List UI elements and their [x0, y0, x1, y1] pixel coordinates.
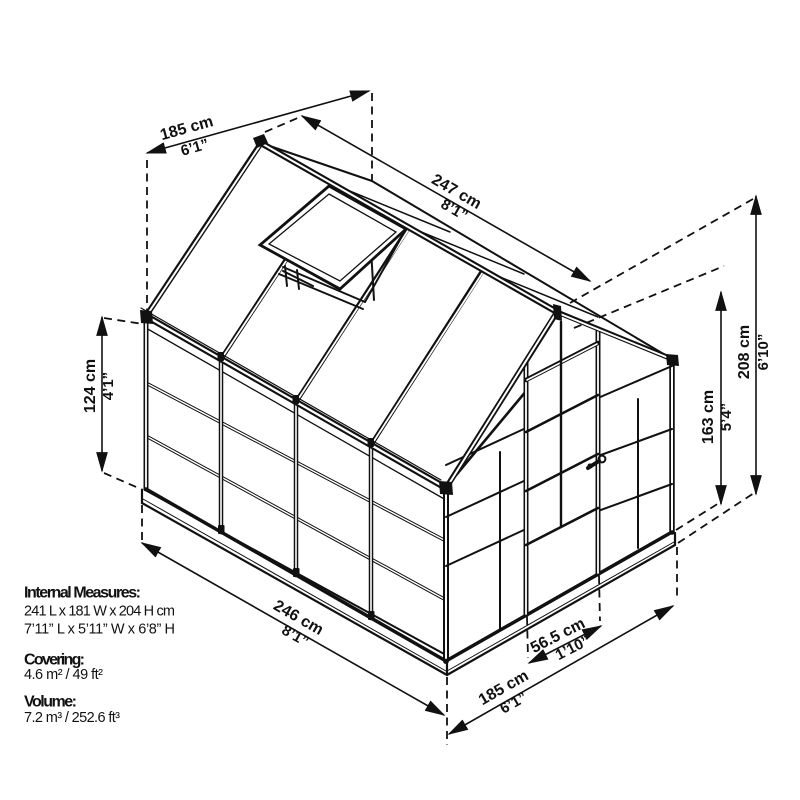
- svg-text:4’1”: 4’1”: [100, 372, 117, 400]
- svg-text:241 L x 181 W x 204 H cm: 241 L x 181 W x 204 H cm: [24, 604, 175, 620]
- svg-text:6’10”: 6’10”: [755, 334, 772, 371]
- svg-text:7’11” L x 5’11” W x 6’8” H: 7’11” L x 5’11” W x 6’8” H: [24, 622, 175, 638]
- svg-text:208 cm: 208 cm: [736, 325, 753, 379]
- svg-text:163 cm: 163 cm: [700, 390, 717, 444]
- svg-text:Internal Measures:: Internal Measures:: [24, 585, 141, 602]
- svg-text:4.6 m² / 49 ft²: 4.6 m² / 49 ft²: [24, 667, 103, 683]
- svg-text:Volume:: Volume:: [24, 694, 77, 711]
- svg-text:124 cm: 124 cm: [82, 359, 99, 413]
- svg-text:5’4”: 5’4”: [718, 403, 735, 431]
- svg-text:7.2 m³ / 252.6 ft³: 7.2 m³ / 252.6 ft³: [24, 710, 120, 726]
- svg-text:Covering:: Covering:: [24, 652, 85, 669]
